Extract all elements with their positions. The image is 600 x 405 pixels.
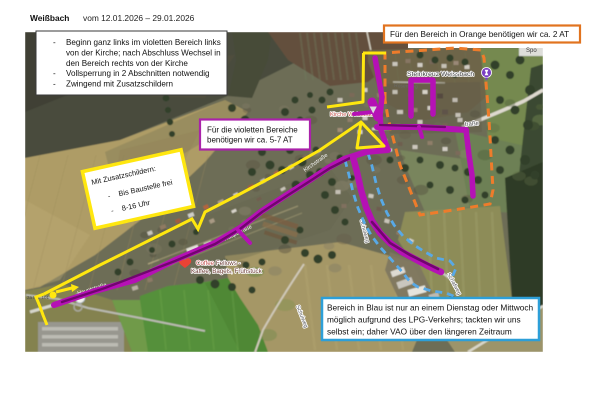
svg-text:Weißbach: Weißbach xyxy=(30,13,69,23)
svg-text:Spo: Spo xyxy=(526,48,537,54)
svg-text:vom 12.01.2026 – 29.01.2026: vom 12.01.2026 – 29.01.2026 xyxy=(83,13,195,23)
svg-text:selbst ein; daher VAO über den: selbst ein; daher VAO über den längeren … xyxy=(327,327,512,337)
svg-text:Steinkreuz Weissbach: Steinkreuz Weissbach xyxy=(407,71,474,78)
svg-text:Vollsperrung in 2 Abschnitten: Vollsperrung in 2 Abschnitten notwendig xyxy=(66,69,210,78)
svg-text:benötigen wir ca. 5-7 AT: benötigen wir ca. 5-7 AT xyxy=(207,136,293,145)
svg-text:Zwingend mit Zusatzschildern: Zwingend mit Zusatzschildern xyxy=(66,80,173,89)
svg-text:Bereich in Blau ist nur an ein: Bereich in Blau ist nur an einem Diensta… xyxy=(327,303,534,313)
svg-text:Kaffee, Bagels, Frühstück: Kaffee, Bagels, Frühstück xyxy=(191,268,263,275)
svg-text:Für den Bereich in Orange benö: Für den Bereich in Orange benötigen wir … xyxy=(390,30,569,39)
svg-text:Coffee Fellows -: Coffee Fellows - xyxy=(196,260,241,267)
svg-text:-: - xyxy=(53,69,56,78)
svg-text:möglich aufgrund des LPG-Verke: möglich aufgrund des LPG-Verkehrs; tackt… xyxy=(327,315,521,325)
svg-text:Für die violetten Bereiche: Für die violetten Bereiche xyxy=(207,126,298,135)
svg-text:von der Kirche; nach Abschluss: von der Kirche; nach Abschluss Wechsel i… xyxy=(66,48,221,57)
svg-text:Rosenweg: Rosenweg xyxy=(394,83,418,90)
svg-text:den Bereich rechts von der Kir: den Bereich rechts von der Kirche xyxy=(66,59,188,68)
svg-text:-: - xyxy=(53,38,56,47)
svg-text:traße: traße xyxy=(465,121,480,128)
svg-text:-: - xyxy=(53,80,56,89)
svg-text:Beginn ganz links im violetten: Beginn ganz links im violetten Bereich l… xyxy=(66,38,221,47)
